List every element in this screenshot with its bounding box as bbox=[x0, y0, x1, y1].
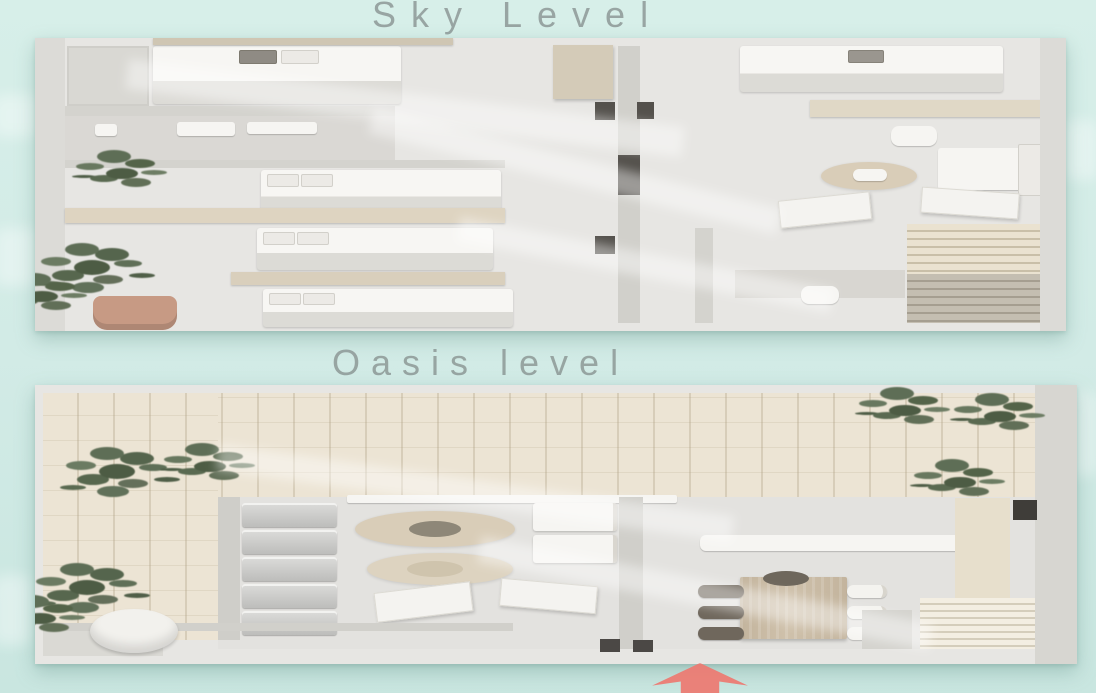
white-planter-pot bbox=[90, 609, 178, 653]
door-opening bbox=[600, 639, 620, 652]
background-streak bbox=[0, 228, 40, 286]
plant bbox=[60, 563, 94, 576]
plant bbox=[97, 150, 131, 163]
pillow bbox=[239, 50, 277, 64]
appliance bbox=[242, 584, 337, 608]
background-streak bbox=[0, 575, 32, 645]
toilet bbox=[95, 124, 117, 136]
dining-chair bbox=[698, 627, 744, 640]
table-platter bbox=[763, 571, 809, 586]
sky-level-plan bbox=[35, 38, 1066, 331]
table-platter bbox=[409, 521, 461, 537]
appliance bbox=[242, 530, 337, 554]
louver-deck bbox=[907, 274, 1040, 323]
dining-chair bbox=[847, 585, 887, 598]
louver-deck bbox=[907, 224, 1040, 274]
armchair bbox=[891, 126, 937, 146]
kitchen-appliance-stack bbox=[242, 503, 337, 638]
floor-mat bbox=[920, 187, 1020, 220]
wood-shelf bbox=[810, 100, 1045, 117]
cabinet bbox=[553, 45, 613, 99]
plant bbox=[65, 243, 99, 256]
pillow bbox=[281, 50, 319, 64]
wall bbox=[1040, 38, 1066, 331]
wood-shelf bbox=[65, 208, 505, 223]
oasis-level-plan bbox=[35, 385, 1077, 664]
pillow bbox=[301, 174, 333, 187]
bed bbox=[263, 289, 513, 327]
wall bbox=[1035, 385, 1077, 664]
plant bbox=[185, 443, 219, 456]
bathtub bbox=[177, 122, 235, 136]
headboard-shelf bbox=[153, 38, 453, 45]
oasis-level-title: Oasis level bbox=[332, 342, 629, 384]
wall bbox=[218, 497, 240, 640]
door-opening bbox=[637, 102, 654, 119]
bench bbox=[700, 535, 970, 551]
appliance bbox=[242, 557, 337, 581]
plant bbox=[975, 393, 1009, 406]
coffee-tray bbox=[853, 169, 887, 181]
sky-level-title: Sky Level bbox=[372, 0, 663, 36]
plant bbox=[90, 447, 124, 460]
cabinet bbox=[955, 498, 1010, 598]
terracotta-pot bbox=[93, 296, 177, 330]
pillow bbox=[267, 174, 299, 187]
plant bbox=[935, 459, 969, 472]
pillow bbox=[269, 293, 301, 305]
floor-mat bbox=[778, 191, 872, 228]
wood-deck bbox=[43, 393, 218, 640]
pillow bbox=[263, 232, 295, 245]
floorplan-poster: Sky Level bbox=[0, 0, 1096, 693]
entrance-arrow-icon bbox=[652, 663, 748, 693]
pillow bbox=[297, 232, 329, 245]
wood-shelf bbox=[231, 272, 505, 285]
door-opening bbox=[633, 640, 653, 652]
louver-deck bbox=[920, 598, 1042, 649]
door-opening bbox=[1013, 500, 1037, 520]
table-platter bbox=[407, 561, 463, 577]
appliance bbox=[242, 503, 337, 527]
pillow bbox=[848, 50, 884, 63]
wall bbox=[65, 160, 505, 168]
wall bbox=[35, 38, 65, 331]
plant bbox=[880, 387, 914, 400]
bed bbox=[740, 46, 1003, 92]
pillow bbox=[303, 293, 335, 305]
sink-counter bbox=[247, 122, 317, 134]
